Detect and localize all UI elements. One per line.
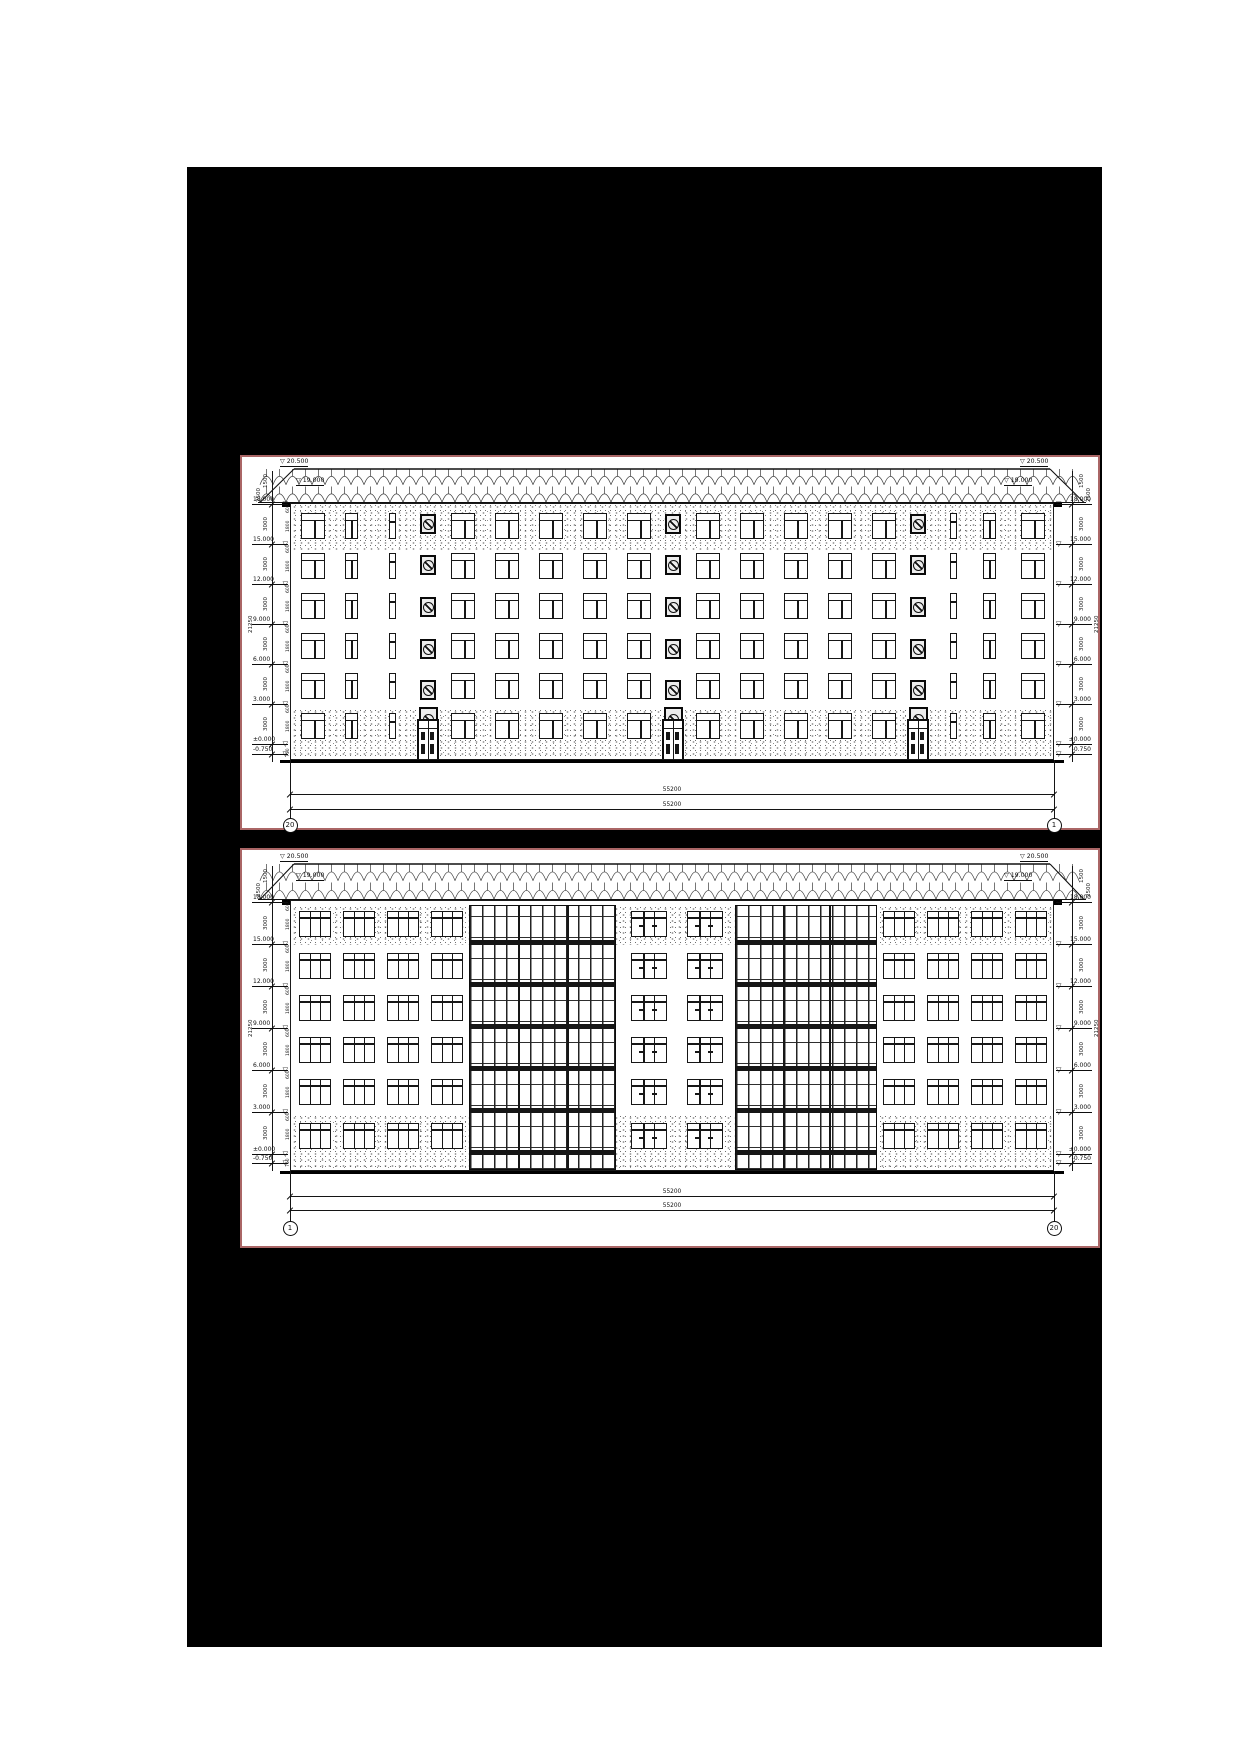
- window: [343, 1037, 375, 1063]
- floor-dim-text: 3000: [263, 1000, 269, 1014]
- level-text: 15.000: [253, 536, 274, 543]
- elevation-marker: 15.000▽: [1056, 937, 1092, 949]
- window: [431, 1037, 463, 1063]
- window: [828, 593, 852, 619]
- window-transom: [697, 640, 719, 641]
- window: [431, 995, 463, 1021]
- ridge-level-label: ▽ 20.500: [280, 458, 308, 467]
- level-text: 12.000: [1070, 978, 1091, 985]
- medallion-ornament: [420, 555, 436, 575]
- window-dim-text: 600: [286, 987, 292, 996]
- window-mullion: [654, 1080, 655, 1104]
- vent-mark: [708, 1137, 713, 1139]
- level-line: [1056, 986, 1092, 987]
- level-text: ▽ 20.500: [280, 458, 308, 465]
- vent-mark: [652, 1137, 657, 1139]
- window: [627, 553, 651, 579]
- elevation-marker: 9.000▽: [252, 1021, 288, 1033]
- elevation-marker: 12.000▽: [252, 979, 288, 991]
- window-transom: [829, 680, 851, 681]
- level-text: 9.000: [253, 1020, 270, 1027]
- window: [539, 673, 563, 699]
- floor-dim-text: 3000: [263, 1042, 269, 1056]
- window-transom: [584, 600, 606, 601]
- level-line: [1056, 704, 1092, 705]
- window-transom: [1022, 680, 1044, 681]
- window-mullion: [841, 600, 842, 618]
- medallion-rosette-icon: [913, 519, 924, 530]
- window: [431, 953, 463, 979]
- vent-mark: [695, 1093, 700, 1095]
- window-mullion: [709, 520, 710, 538]
- level-line: [1056, 1028, 1092, 1029]
- window: [631, 1037, 667, 1063]
- window-dim-text: 600: [286, 1029, 292, 1038]
- window-transom: [785, 520, 807, 521]
- window-transom: [884, 1129, 914, 1131]
- window-dim-text: 1800: [286, 960, 292, 971]
- window-transom: [972, 1001, 1002, 1003]
- dim-text: 55200: [652, 1189, 692, 1195]
- elevation-marker: 6.000▽: [252, 1063, 288, 1075]
- floor-slab: [470, 940, 615, 945]
- window: [1015, 1123, 1047, 1149]
- top-dim-text: 2500: [1086, 883, 1092, 897]
- window-transom: [1022, 520, 1044, 521]
- medallion-ornament: [910, 514, 926, 534]
- window-transom: [390, 721, 395, 722]
- level-text: ▽ 19.000: [1004, 477, 1032, 484]
- window-mullion: [989, 600, 990, 618]
- window-transom: [829, 640, 851, 641]
- window-mullion: [904, 996, 905, 1020]
- window-transom: [432, 917, 462, 919]
- window: [1015, 1079, 1047, 1105]
- window-transom: [928, 1085, 958, 1087]
- level-line: [1056, 544, 1092, 545]
- window: [431, 911, 463, 937]
- window: [301, 633, 325, 659]
- medallion-rosette-icon: [668, 644, 679, 655]
- window-mullion: [1026, 996, 1027, 1020]
- level-text: 6.000: [253, 1062, 270, 1069]
- window-transom: [1016, 1043, 1046, 1045]
- window-mullion: [841, 640, 842, 658]
- window: [950, 513, 957, 539]
- window: [389, 713, 396, 739]
- window: [345, 553, 358, 579]
- window-mullion: [982, 1080, 983, 1104]
- window: [495, 633, 519, 659]
- window-mullion: [408, 1124, 409, 1148]
- window-mullion: [408, 996, 409, 1020]
- level-line: [252, 544, 288, 545]
- top-dim-text: 2500: [256, 488, 262, 502]
- window-transom: [344, 1043, 374, 1045]
- window-transom: [496, 640, 518, 641]
- window-mullion: [938, 1038, 939, 1062]
- window-mullion: [1036, 1038, 1037, 1062]
- window-dim-text: 600: [286, 585, 292, 594]
- window: [301, 673, 325, 699]
- window: [1021, 553, 1045, 579]
- window-dim-text: 1800: [286, 600, 292, 611]
- window-mullion: [398, 1124, 399, 1148]
- window: [387, 995, 419, 1021]
- window-mullion: [885, 720, 886, 738]
- window-mullion: [841, 720, 842, 738]
- elevation-marker: -0.750▽: [1056, 1156, 1092, 1168]
- window-transom: [628, 560, 650, 561]
- window: [583, 713, 607, 739]
- entrance-door: [907, 719, 929, 760]
- window-transom: [388, 917, 418, 919]
- elevation-marker: 9.000▽: [1056, 1021, 1092, 1033]
- window: [495, 593, 519, 619]
- window-mullion: [797, 520, 798, 538]
- medallion-rosette-icon: [423, 560, 434, 571]
- medallion-ornament: [420, 639, 436, 659]
- level-text: 6.000: [1074, 656, 1091, 663]
- window-mullion: [797, 600, 798, 618]
- window-dim-text: 600: [286, 625, 292, 634]
- window-transom: [972, 917, 1002, 919]
- window-transom: [432, 1085, 462, 1087]
- window: [345, 593, 358, 619]
- level-text: 3.000: [253, 696, 270, 703]
- floor-dim-text: 3000: [263, 717, 269, 731]
- window-transom: [951, 641, 956, 642]
- level-text: -0.750: [253, 746, 272, 753]
- vent-mark: [639, 1051, 644, 1053]
- dim-chain-line-left: [272, 866, 273, 1171]
- window-mullion: [320, 954, 321, 978]
- window: [389, 673, 396, 699]
- window-dim-text: 1800: [286, 640, 292, 651]
- floor-dim-text: 3000: [1079, 517, 1085, 531]
- window-mullion: [699, 996, 700, 1020]
- floor-slab: [736, 1108, 876, 1113]
- window-mullion: [442, 912, 443, 936]
- medallion-rosette-icon: [423, 519, 434, 530]
- total-height-dim-text: 21250: [1094, 615, 1100, 633]
- level-line: [296, 485, 324, 486]
- window-mullion: [508, 520, 509, 538]
- top-dim-text: 1500: [263, 869, 269, 883]
- window-transom: [452, 640, 474, 641]
- window-mullion: [442, 996, 443, 1020]
- window-mullion: [310, 996, 311, 1020]
- vent-mark: [695, 925, 700, 927]
- window: [1015, 911, 1047, 937]
- window-transom: [432, 959, 462, 961]
- window-transom: [1022, 560, 1044, 561]
- window: [495, 673, 519, 699]
- window-transom: [873, 720, 895, 721]
- balcony-mullion: [783, 906, 785, 1169]
- medallion-rosette-icon: [913, 644, 924, 655]
- window-transom: [1022, 600, 1044, 601]
- floor-slab: [736, 1024, 876, 1029]
- window-transom: [432, 1043, 462, 1045]
- window: [872, 593, 896, 619]
- window-mullion: [1036, 996, 1037, 1020]
- window-transom: [928, 1129, 958, 1131]
- elevation-marker: 9.000▽: [252, 617, 288, 629]
- level-line: [1004, 485, 1032, 486]
- floor-dim-text: 3000: [263, 1084, 269, 1098]
- window-mullion: [989, 520, 990, 538]
- window-dim-text: 600: [286, 1113, 292, 1122]
- window: [784, 633, 808, 659]
- window-mullion: [948, 1124, 949, 1148]
- level-text: 9.000: [1074, 1020, 1091, 1027]
- total-height-dim-text: 21250: [248, 1019, 254, 1037]
- window: [627, 713, 651, 739]
- base-dim-text: 750: [286, 749, 292, 758]
- window-transom: [972, 1129, 1002, 1131]
- floor-dim-text: 3000: [263, 677, 269, 691]
- window-dim-text: 1800: [286, 520, 292, 531]
- window: [631, 1123, 667, 1149]
- floor-dim-text: 3000: [263, 557, 269, 571]
- window-mullion: [753, 680, 754, 698]
- window-mullion: [1036, 912, 1037, 936]
- window-mullion: [894, 954, 895, 978]
- window-mullion: [1026, 1080, 1027, 1104]
- window-mullion: [948, 912, 949, 936]
- window-transom: [388, 1129, 418, 1131]
- window: [539, 713, 563, 739]
- window: [387, 1079, 419, 1105]
- window-transom: [452, 520, 474, 521]
- elevation-marker: 9.000▽: [1056, 617, 1092, 629]
- window-transom: [688, 917, 722, 919]
- medallion-rosette-icon: [668, 519, 679, 530]
- entrance-door: [662, 719, 684, 760]
- window: [828, 673, 852, 699]
- window-mullion: [1034, 720, 1035, 738]
- window-mullion: [464, 680, 465, 698]
- window: [971, 1037, 1003, 1063]
- window-transom: [540, 720, 562, 721]
- window-mullion: [904, 954, 905, 978]
- window-dim-text: 600: [286, 545, 292, 554]
- medallion-ornament: [420, 514, 436, 534]
- window-transom: [632, 1043, 666, 1045]
- medallion-ornament: [910, 680, 926, 700]
- level-text: ▽ 19.000: [296, 872, 324, 879]
- window-transom: [300, 959, 330, 961]
- window-mullion: [364, 912, 365, 936]
- window-transom: [584, 720, 606, 721]
- level-text: 3.000: [1074, 696, 1091, 703]
- window-transom: [688, 959, 722, 961]
- window-mullion: [452, 1080, 453, 1104]
- level-line: [1020, 466, 1048, 467]
- window-transom: [388, 959, 418, 961]
- elevation-marker: 12.000▽: [252, 577, 288, 589]
- window-transom: [785, 720, 807, 721]
- vent-mark: [652, 967, 657, 969]
- window-mullion: [452, 954, 453, 978]
- window: [495, 513, 519, 539]
- window-mullion: [354, 1124, 355, 1148]
- window-mullion: [314, 680, 315, 698]
- window: [299, 911, 331, 937]
- window-transom: [1016, 1085, 1046, 1087]
- level-text: ±0.000: [1069, 1146, 1091, 1153]
- floor-slab: [470, 1024, 615, 1029]
- window-mullion: [640, 600, 641, 618]
- floor-slab: [736, 1150, 876, 1155]
- window-mullion: [1036, 1124, 1037, 1148]
- window: [627, 673, 651, 699]
- window-mullion: [709, 680, 710, 698]
- window: [1021, 713, 1045, 739]
- window-transom: [302, 560, 324, 561]
- level-text: ▽ 20.500: [280, 853, 308, 860]
- window-transom: [785, 600, 807, 601]
- vent-mark: [695, 1009, 700, 1011]
- window: [983, 513, 996, 539]
- window-mullion: [709, 560, 710, 578]
- medallion-ornament: [665, 639, 681, 659]
- level-text: 3.000: [253, 1104, 270, 1111]
- window-mullion: [552, 720, 553, 738]
- window: [299, 1123, 331, 1149]
- window-mullion: [398, 1080, 399, 1104]
- window: [631, 953, 667, 979]
- window-dim-text: 1800: [286, 680, 292, 691]
- window: [696, 553, 720, 579]
- window: [627, 513, 651, 539]
- window-transom: [388, 1001, 418, 1003]
- window-mullion: [654, 912, 655, 936]
- vent-mark: [639, 925, 644, 927]
- elevation-marker: -0.750▽: [252, 747, 288, 759]
- window-mullion: [643, 1080, 644, 1104]
- window-mullion: [989, 640, 990, 658]
- window-mullion: [351, 560, 352, 578]
- window-transom: [785, 560, 807, 561]
- level-line: [252, 1163, 288, 1164]
- window-mullion: [948, 1038, 949, 1062]
- window: [539, 513, 563, 539]
- window-mullion: [508, 600, 509, 618]
- level-line: [252, 744, 288, 745]
- window-transom: [390, 601, 395, 602]
- window-transom: [688, 1129, 722, 1131]
- window-mullion: [314, 560, 315, 578]
- window-transom: [928, 1001, 958, 1003]
- window-mullion: [710, 1080, 711, 1104]
- window-mullion: [464, 520, 465, 538]
- window-mullion: [320, 1038, 321, 1062]
- window: [983, 673, 996, 699]
- window: [784, 513, 808, 539]
- level-line: [1056, 1163, 1092, 1164]
- window: [1021, 673, 1045, 699]
- window: [971, 1123, 1003, 1149]
- window-transom: [928, 959, 958, 961]
- floor-dim-text: 3000: [263, 958, 269, 972]
- window-transom: [390, 681, 395, 682]
- window-transom: [1022, 640, 1044, 641]
- window-transom: [873, 640, 895, 641]
- window: [345, 633, 358, 659]
- floor-dim-text: 3000: [1079, 916, 1085, 930]
- window: [740, 513, 764, 539]
- medallion-ornament: [910, 639, 926, 659]
- window-dim-text: 600: [286, 945, 292, 954]
- window-transom: [452, 720, 474, 721]
- window-transom: [688, 1001, 722, 1003]
- level-line: [1056, 1112, 1092, 1113]
- window-mullion: [640, 680, 641, 698]
- window-mullion: [894, 1124, 895, 1148]
- window-transom: [302, 640, 324, 641]
- window-transom: [344, 917, 374, 919]
- window-mullion: [1034, 680, 1035, 698]
- window-mullion: [398, 954, 399, 978]
- floor-dim-text: 3000: [1079, 1126, 1085, 1140]
- vent-mark: [708, 967, 713, 969]
- window: [687, 1079, 723, 1105]
- window-transom: [697, 560, 719, 561]
- window: [345, 713, 358, 739]
- window: [301, 713, 325, 739]
- ridge-level-label: ▽ 20.500: [1020, 458, 1048, 467]
- window-mullion: [354, 954, 355, 978]
- window-transom: [540, 680, 562, 681]
- window-mullion: [452, 1124, 453, 1148]
- level-line: [1056, 944, 1092, 945]
- level-text: ±0.000: [1069, 736, 1091, 743]
- vent-mark: [639, 967, 644, 969]
- window: [971, 911, 1003, 937]
- window-transom: [688, 1085, 722, 1087]
- window: [451, 673, 475, 699]
- window-mullion: [710, 912, 711, 936]
- window-mullion: [885, 520, 886, 538]
- window-mullion: [904, 1080, 905, 1104]
- window-mullion: [408, 912, 409, 936]
- vent-mark: [708, 925, 713, 927]
- window-mullion: [596, 680, 597, 698]
- ground-line: [280, 1171, 1064, 1174]
- window: [431, 1123, 463, 1149]
- window: [345, 513, 358, 539]
- window: [539, 593, 563, 619]
- window-mullion: [710, 996, 711, 1020]
- floor-slab: [470, 1150, 615, 1155]
- window-mullion: [1034, 520, 1035, 538]
- rear-elevation-panel: 18.000▽15.000▽12.000▽9.000▽6.000▽3.000▽±…: [240, 848, 1100, 1248]
- window-transom: [1022, 720, 1044, 721]
- window-mullion: [797, 680, 798, 698]
- window-transom: [951, 601, 956, 602]
- window-transom: [584, 560, 606, 561]
- floor-dim-text: 3000: [1079, 958, 1085, 972]
- window-mullion: [894, 1038, 895, 1062]
- window-mullion: [640, 520, 641, 538]
- window: [828, 633, 852, 659]
- level-text: 6.000: [253, 656, 270, 663]
- window-mullion: [351, 680, 352, 698]
- window-mullion: [320, 912, 321, 936]
- window: [387, 911, 419, 937]
